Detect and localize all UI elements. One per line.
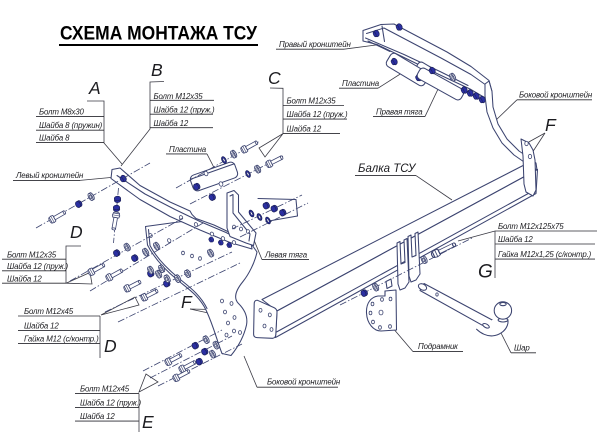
svg-text:СХЕМА МОНТАЖА ТСУ: СХЕМА МОНТАЖА ТСУ: [60, 24, 257, 45]
svg-text:B: B: [151, 60, 163, 80]
svg-text:Болт М12х125х75: Болт М12х125х75: [498, 222, 564, 231]
svg-text:Левая тяга: Левая тяга: [264, 251, 308, 260]
svg-text:Шайба 12: Шайба 12: [80, 412, 115, 421]
svg-text:D: D: [70, 222, 83, 242]
svg-text:F: F: [545, 115, 557, 135]
svg-text:Болт М12х35: Болт М12х35: [7, 250, 57, 259]
svg-text:Гайка М12х1,25 (с/контр.): Гайка М12х1,25 (с/контр.): [498, 250, 592, 259]
svg-text:Болт М12х45: Болт М12х45: [24, 307, 74, 316]
svg-text:Шайба 12: Шайба 12: [154, 119, 189, 128]
svg-text:Шайба 12: Шайба 12: [498, 235, 533, 244]
svg-text:Шайба 12 (пруж.): Шайба 12 (пруж.): [80, 399, 142, 408]
svg-text:Шар: Шар: [514, 344, 530, 353]
svg-text:Шайба 12 (пруж.): Шайба 12 (пруж.): [154, 105, 216, 114]
svg-text:E: E: [142, 412, 154, 432]
svg-text:Болт М12х35: Болт М12х35: [287, 97, 337, 106]
svg-text:Шайба 12 (пруж.): Шайба 12 (пруж.): [7, 262, 69, 271]
svg-text:Левый кронштейн: Левый кронштейн: [15, 171, 84, 180]
svg-text:Подрамник: Подрамник: [418, 342, 458, 351]
svg-text:Болт М12х35: Болт М12х35: [154, 92, 204, 101]
svg-text:Шайба 12 (пруж.): Шайба 12 (пруж.): [287, 110, 349, 119]
svg-text:Пластина: Пластина: [342, 79, 380, 88]
svg-text:A: A: [88, 78, 101, 98]
svg-text:Болт М12х45: Болт М12х45: [80, 385, 130, 394]
svg-text:Гайка М12 (с/контр.): Гайка М12 (с/контр.): [24, 335, 99, 344]
svg-text:Шайба 8: Шайба 8: [39, 133, 70, 142]
svg-text:Правый кронштейн: Правый кронштейн: [279, 40, 351, 49]
svg-text:Боковой кронштейн: Боковой кронштейн: [267, 378, 341, 387]
svg-text:Балка ТСУ: Балка ТСУ: [358, 163, 417, 175]
svg-text:Шайба 12: Шайба 12: [24, 322, 59, 331]
svg-text:C: C: [268, 68, 281, 88]
svg-text:Шайба 8 (пружин): Шайба 8 (пружин): [39, 121, 103, 130]
svg-text:D: D: [104, 336, 117, 356]
svg-text:Шайба 12: Шайба 12: [7, 274, 42, 283]
svg-text:Правая тяга: Правая тяга: [376, 108, 423, 117]
svg-text:Шайба 12: Шайба 12: [287, 124, 322, 133]
svg-text:Болт М8х30: Болт М8х30: [39, 108, 85, 117]
svg-text:G: G: [478, 262, 493, 283]
svg-text:Боковой кронштейн: Боковой кронштейн: [519, 91, 593, 100]
svg-text:Пластина: Пластина: [169, 145, 207, 154]
